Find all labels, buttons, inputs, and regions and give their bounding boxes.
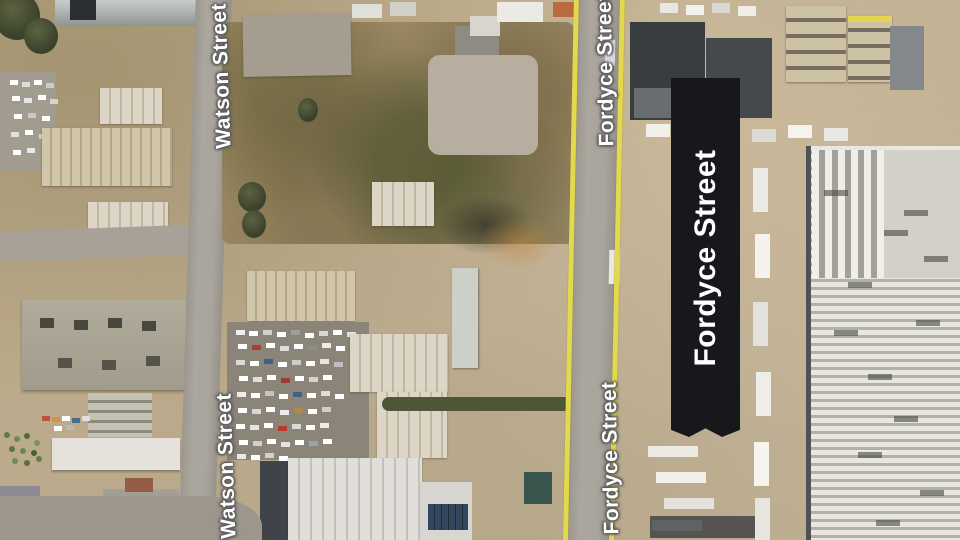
parked-cars	[10, 80, 18, 85]
parked-trucks	[660, 3, 678, 13]
warehouse-roof	[22, 300, 187, 390]
trees	[24, 18, 58, 54]
building-wall-shadow	[260, 461, 290, 540]
building-roof	[524, 472, 552, 504]
annotation-label: Fordyce Street	[689, 149, 723, 366]
building-roof	[70, 0, 96, 20]
building-roof	[52, 438, 180, 470]
silo-structure	[452, 268, 478, 368]
scrap-yard	[4, 432, 10, 438]
warehouse-roof	[42, 128, 172, 186]
street-label-fordyce-top: Fordyce Street	[593, 0, 620, 147]
trees	[298, 98, 318, 122]
parking-lot	[227, 322, 369, 460]
loading-dock-trailers	[648, 446, 698, 457]
street-label-fordyce-bottom: Fordyce Street	[598, 381, 625, 534]
shipping-containers	[125, 478, 153, 492]
work-yard	[428, 55, 538, 155]
side-road	[0, 225, 200, 262]
warehouse-roof	[247, 271, 355, 321]
parked-cars	[236, 330, 245, 335]
warehouse-roof	[812, 150, 884, 278]
building-roof	[100, 88, 162, 124]
satellite-imagery	[0, 0, 960, 540]
concrete-pad	[242, 13, 351, 77]
roof-stripe	[848, 16, 892, 22]
hedge-row	[382, 397, 572, 411]
warehouse-roof	[884, 150, 960, 278]
dirt-patch	[478, 215, 558, 270]
storage-units	[350, 334, 448, 392]
trees	[238, 182, 266, 212]
roof-vents	[40, 318, 54, 328]
parked-trucks	[646, 124, 670, 137]
building-roof	[88, 393, 152, 437]
parked-cars	[42, 416, 50, 421]
building-roof	[848, 16, 892, 82]
street-label-watson-top: Watson Street	[207, 3, 236, 149]
parked-trailers	[753, 168, 768, 212]
truck	[497, 2, 543, 22]
building-roof	[372, 182, 434, 226]
solar-panels	[428, 504, 468, 530]
building-roof	[786, 6, 846, 82]
building-roof	[470, 16, 500, 36]
truck	[390, 2, 416, 16]
loading-dock-shadow	[650, 516, 755, 538]
street-label-watson-bottom: Watson Street	[212, 393, 241, 539]
trees	[242, 210, 266, 238]
warehouse-roof	[288, 458, 422, 540]
roof-details	[824, 190, 848, 196]
building-roof	[890, 26, 924, 90]
truck	[352, 4, 382, 18]
fordyce-street-annotation: Fordyce Street	[671, 78, 740, 437]
map-viewport[interactable]: Watson Street Watson Street Fordyce Stre…	[0, 0, 960, 540]
